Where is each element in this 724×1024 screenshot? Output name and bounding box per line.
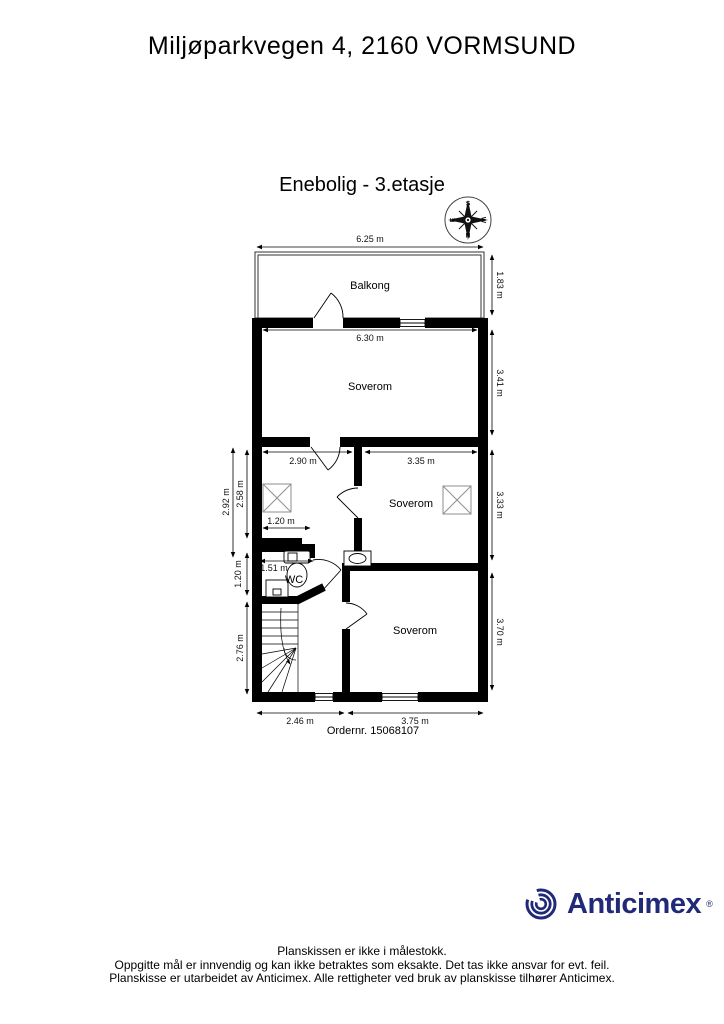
room-label-bedroom-mid: Soverom	[389, 498, 433, 510]
stairs-icon	[262, 604, 298, 692]
dim-balcony-width: 6.25 m	[356, 234, 384, 244]
floor-plan-page: Miljøparkvegen 4, 2160 VORMSUND Enebolig…	[0, 0, 724, 1024]
compass-east-label: E	[450, 218, 457, 222]
dim-stairs-depth: 2.76 m	[235, 634, 245, 662]
dim-bottom-left-width: 2.46 m	[286, 716, 314, 726]
dimension-lines	[233, 247, 492, 713]
dim-balcony-depth: 1.83 m	[495, 271, 505, 299]
room-label-bedroom-top: Soverom	[348, 381, 392, 393]
anticimex-logo: Anticimex®	[520, 883, 713, 925]
compass-west-label: W	[480, 217, 487, 223]
dim-hall-depth-inner: 2.58 m	[235, 480, 245, 508]
dim-bedroom-bottom-depth: 3.70 m	[495, 618, 505, 646]
dim-bedroom-mid-width: 3.35 m	[407, 456, 435, 466]
dim-bedroom-mid-depth: 3.33 m	[495, 491, 505, 519]
order-number: Ordernr. 15068107	[327, 725, 419, 737]
dim-wc-width: 1.51 m	[260, 563, 288, 573]
dim-hall-width: 2.90 m	[289, 456, 317, 466]
anticimex-swirl-icon	[520, 883, 562, 925]
dim-bedroom-top-width: 6.30 m	[356, 333, 384, 343]
washbasin-icon	[344, 551, 371, 566]
anticimex-logo-text: Anticimex	[567, 888, 701, 921]
skylight-icons	[263, 484, 471, 514]
registered-mark: ®	[706, 899, 713, 909]
disclaimer: Planskissen er ikke i målestokk. Oppgitt…	[0, 945, 724, 986]
disclaimer-line2: Oppgitte mål er innvendig og kan ikke be…	[0, 959, 724, 973]
disclaimer-line1: Planskissen er ikke i målestokk.	[0, 945, 724, 959]
walls	[252, 318, 488, 702]
room-label-balcony: Balkong	[350, 280, 390, 292]
dim-bedroom-top-depth: 3.41 m	[495, 369, 505, 397]
dim-hall-depth-outer: 2.92 m	[221, 488, 231, 516]
compass-south-label: S	[466, 201, 470, 208]
dim-wc-depth: 1.20 m	[233, 560, 243, 588]
window-symbols	[315, 320, 425, 701]
room-label-bedroom-bottom: Soverom	[393, 625, 437, 637]
room-label-wc: WC	[285, 574, 303, 586]
dim-closet-width: 1.20 m	[267, 516, 295, 526]
compass-north-label: N	[466, 233, 471, 240]
floor-plan-drawing	[0, 0, 724, 1024]
door-openings	[310, 317, 425, 703]
disclaimer-line3: Planskisse er utarbeidet av Anticimex. A…	[0, 972, 724, 986]
